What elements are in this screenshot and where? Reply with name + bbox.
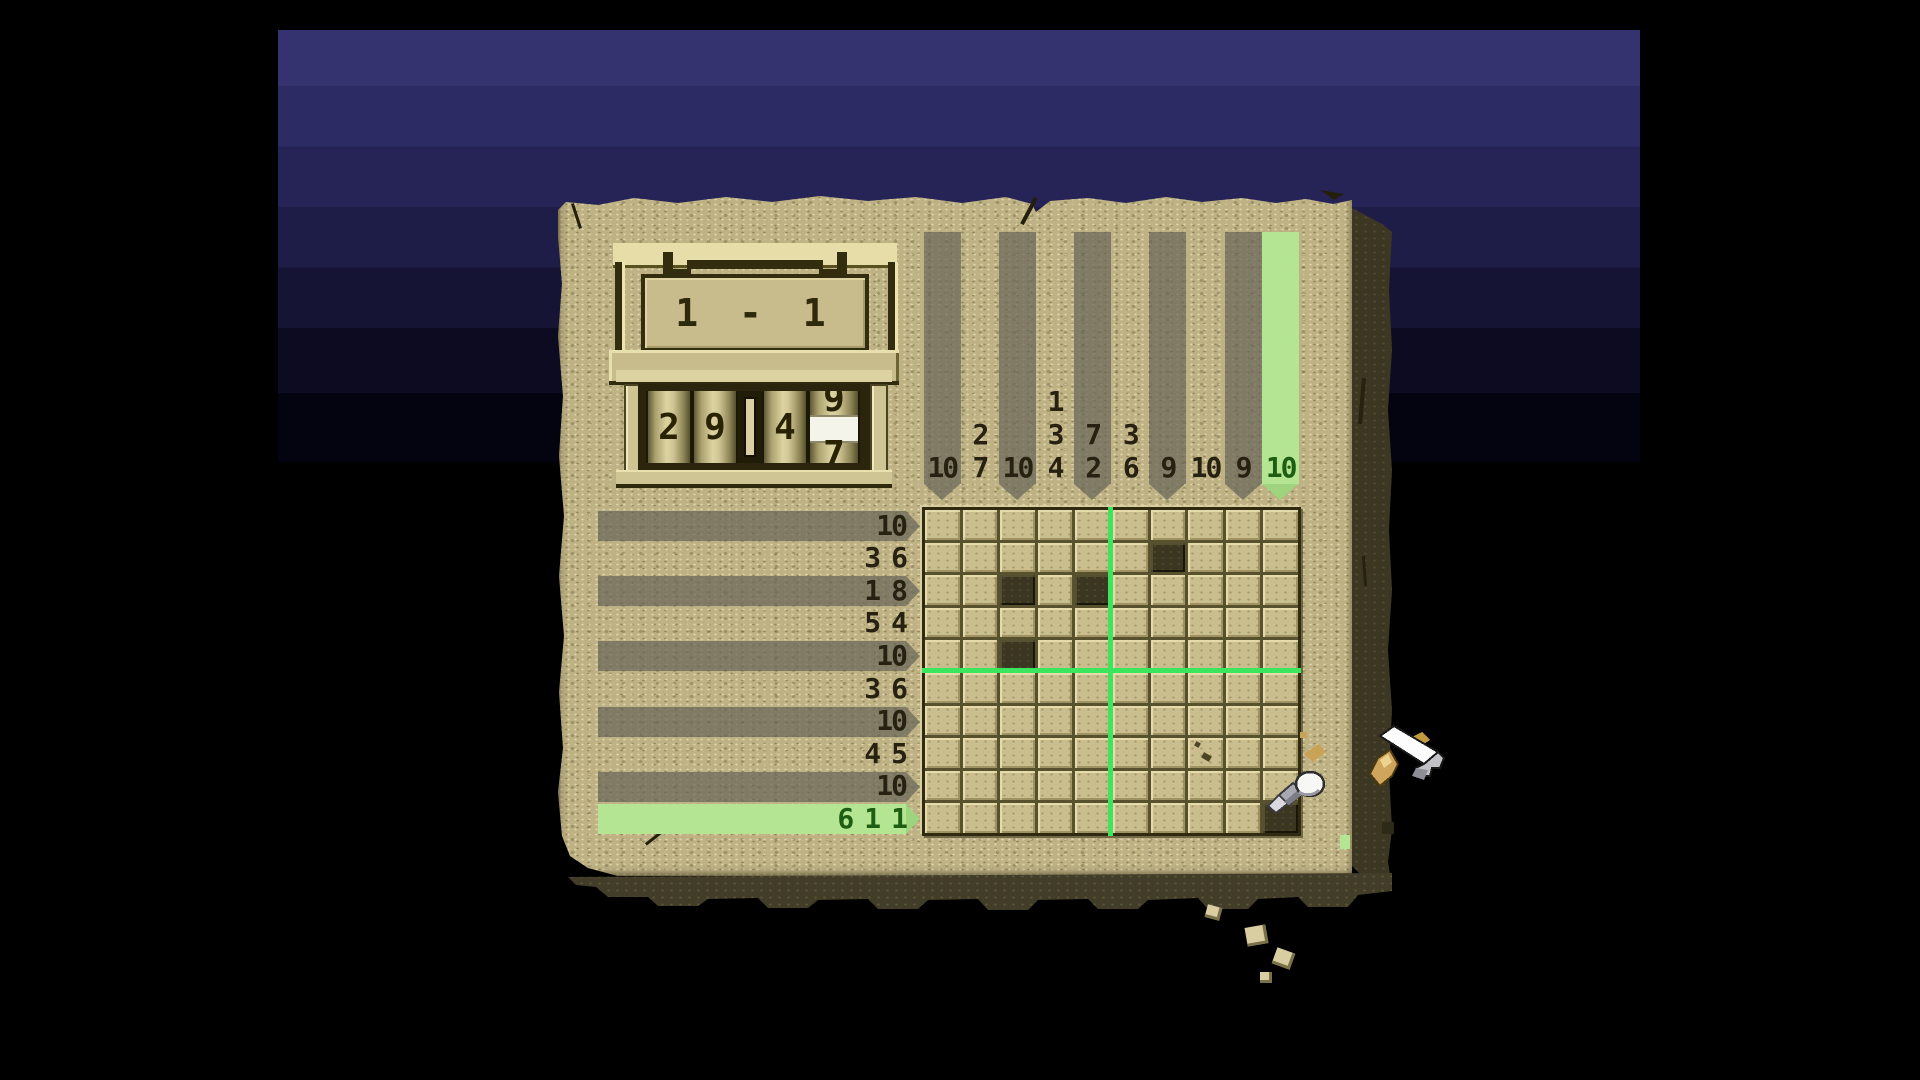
row-hint-number: 1: [864, 802, 879, 835]
grid-cell[interactable]: [963, 575, 998, 605]
hammer-shadow-speck: [1382, 822, 1394, 834]
row-hint-number: 10: [876, 704, 906, 737]
hammer-cursor-icon: [1358, 708, 1458, 818]
grid-cell[interactable]: [1226, 543, 1261, 573]
column-hints: 9: [1149, 451, 1187, 484]
grid-cell-filled[interactable]: [1000, 640, 1035, 670]
column-hint-number: 9: [1149, 451, 1187, 484]
grid-cell[interactable]: [963, 543, 998, 573]
column-stripe-tip: [999, 484, 1035, 500]
column-hint-number: 7: [1074, 418, 1112, 451]
grid-cell[interactable]: [1075, 608, 1110, 638]
grid-cell[interactable]: [1038, 543, 1073, 573]
grid-cell[interactable]: [925, 706, 960, 736]
row-hints: 10: [640, 509, 906, 541]
grid-cell[interactable]: [1263, 640, 1298, 670]
grid-cell[interactable]: [1075, 771, 1110, 801]
grid-cell[interactable]: [925, 575, 960, 605]
grid-cell[interactable]: [1038, 640, 1073, 670]
column-hint-number: 10: [999, 451, 1037, 484]
column-hints: 10: [1262, 451, 1300, 484]
column-stripe-tip: [1225, 484, 1261, 500]
column-stripe: [999, 232, 1036, 484]
column-stripe-tip: [1262, 484, 1298, 500]
timer-digit-minutes-tens: 2: [646, 391, 692, 463]
column-hints: 36: [1111, 418, 1149, 484]
grid-cell-filled[interactable]: [1151, 543, 1186, 573]
grid-cell[interactable]: [1151, 706, 1186, 736]
timer-wheels: 2 9 4 9 7: [638, 384, 870, 470]
column-hint-number: 2: [961, 418, 999, 451]
grid-cell[interactable]: [1113, 673, 1148, 703]
column-hint-number: 10: [1187, 451, 1225, 484]
column-hint-number: 6: [1111, 451, 1149, 484]
grid-cell[interactable]: [1151, 673, 1186, 703]
grid-cell[interactable]: [1113, 608, 1148, 638]
grid-cell[interactable]: [1226, 771, 1261, 801]
row-hints: 36: [640, 542, 906, 574]
green-speck: [1340, 835, 1350, 849]
grid-cell[interactable]: [1113, 771, 1148, 801]
row-stripe-tip: [906, 511, 920, 541]
column-hint-number: 10: [1262, 451, 1300, 484]
column-hints: 10: [999, 451, 1037, 484]
grid-cell[interactable]: [963, 803, 998, 833]
column-hints: 10: [1187, 451, 1225, 484]
grid-cell[interactable]: [1000, 738, 1035, 768]
row-hints: 18: [640, 574, 906, 606]
grid-cell[interactable]: [963, 673, 998, 703]
grid-cell[interactable]: [1226, 673, 1261, 703]
column-hint-number: 3: [1111, 418, 1149, 451]
row-hint-number: 10: [876, 769, 906, 802]
grid-cell[interactable]: [925, 803, 960, 833]
grid-cell[interactable]: [925, 738, 960, 768]
column-hints: 72: [1074, 418, 1112, 484]
grid-cell[interactable]: [925, 608, 960, 638]
timer-counter: 2 9 4 9 7: [616, 370, 892, 494]
timer-digit-minutes-ones: 9: [692, 391, 738, 463]
grid-cell[interactable]: [963, 640, 998, 670]
column-highlight-stripe: [1262, 232, 1299, 484]
column-hint-number: 10: [923, 451, 961, 484]
grid-cell[interactable]: [1000, 510, 1035, 540]
chisel-cursor-icon: [1266, 766, 1328, 816]
grid-cell[interactable]: [1151, 575, 1186, 605]
grid-cell[interactable]: [1038, 706, 1073, 736]
row-hint-number: 6: [891, 672, 906, 705]
grid-cell[interactable]: [1113, 575, 1148, 605]
row-stripe-tip: [906, 804, 920, 834]
row-hint-number: 3: [864, 672, 879, 705]
row-hint-number: 5: [891, 737, 906, 770]
grid-cell[interactable]: [1188, 510, 1223, 540]
grid-cell-filled[interactable]: [1000, 575, 1035, 605]
grid-cell[interactable]: [1263, 575, 1298, 605]
grid-cell[interactable]: [1263, 673, 1298, 703]
grid-cell[interactable]: [1075, 640, 1110, 670]
grid-cell[interactable]: [1151, 738, 1186, 768]
row-stripe-tip: [906, 707, 920, 737]
row-hints: 10: [640, 639, 906, 671]
grid-cell[interactable]: [1113, 543, 1148, 573]
grid-cell[interactable]: [963, 510, 998, 540]
grid-cell[interactable]: [1000, 706, 1035, 736]
grid-cell[interactable]: [925, 771, 960, 801]
grid-cell[interactable]: [1263, 706, 1298, 736]
timer-minutes: 2: [658, 407, 680, 448]
grid-cell[interactable]: [963, 738, 998, 768]
grid-cell[interactable]: [925, 640, 960, 670]
row-stripe-tip: [906, 576, 920, 606]
column-hint-number: 1: [1036, 385, 1074, 418]
grid-cell[interactable]: [1075, 803, 1110, 833]
level-label: 1 - 1: [641, 274, 869, 352]
grid-cell[interactable]: [1226, 510, 1261, 540]
grid-cell[interactable]: [1226, 640, 1261, 670]
row-hints: 10: [640, 770, 906, 802]
row-hint-number: 3: [864, 541, 879, 574]
timer-digit-seconds-tens: 4: [762, 391, 808, 463]
column-hint-number: 2: [1074, 451, 1112, 484]
grid-cell[interactable]: [1038, 771, 1073, 801]
grid-cell[interactable]: [925, 543, 960, 573]
column-stripe-tip: [924, 484, 960, 500]
debris: [1245, 924, 1269, 946]
column-stripe: [1225, 232, 1262, 484]
grid-cell[interactable]: [1075, 738, 1110, 768]
grid-cell[interactable]: [1188, 543, 1223, 573]
row-hints: 45: [640, 737, 906, 769]
column-hint-number: 4: [1036, 451, 1074, 484]
grid-cell[interactable]: [1038, 803, 1073, 833]
grid-cell[interactable]: [1151, 803, 1186, 833]
grid-cell[interactable]: [1151, 771, 1186, 801]
grid-cell[interactable]: [1226, 706, 1261, 736]
row-hint-number: 8: [891, 574, 906, 607]
grid-cell[interactable]: [1151, 640, 1186, 670]
grid-cell[interactable]: [1151, 510, 1186, 540]
row-hint-number: 10: [876, 509, 906, 542]
level-plaque: 1 - 1: [605, 238, 905, 384]
row-hint-number: 1: [891, 802, 906, 835]
grid-cell[interactable]: [1113, 510, 1148, 540]
row-hints: 36: [640, 672, 906, 704]
grid-cell[interactable]: [1188, 771, 1223, 801]
grid-cell[interactable]: [1263, 543, 1298, 573]
debris: [1272, 947, 1296, 969]
grid-cell[interactable]: [1000, 608, 1035, 638]
grid-cell[interactable]: [1113, 640, 1148, 670]
grid-cell[interactable]: [925, 673, 960, 703]
debris: [1205, 904, 1223, 920]
grid-cell[interactable]: [1151, 608, 1186, 638]
grid-cell[interactable]: [1113, 706, 1148, 736]
game-screen: 1 - 1 2 9 4 9 7 102710134723691091010361…: [0, 0, 1920, 1080]
column-hints: 134: [1036, 385, 1074, 484]
grid-cell[interactable]: [1188, 608, 1223, 638]
grid-cell[interactable]: [1188, 706, 1223, 736]
grid-cell[interactable]: [963, 706, 998, 736]
column-hint-number: 9: [1224, 451, 1262, 484]
column-stripe-tip: [1149, 484, 1185, 500]
sand-speck: [1300, 732, 1307, 738]
row-hint-number: 6: [837, 802, 852, 835]
row-stripe-tip: [906, 641, 920, 671]
grid-cell[interactable]: [1038, 738, 1073, 768]
grid-cell[interactable]: [1038, 608, 1073, 638]
grid-cell[interactable]: [963, 771, 998, 801]
row-hint-number: 10: [876, 639, 906, 672]
grid-cell[interactable]: [1188, 640, 1223, 670]
grid-cell[interactable]: [1075, 543, 1110, 573]
grid-cell[interactable]: [1038, 575, 1073, 605]
row-hint-number: 4: [891, 606, 906, 639]
row-hint-number: 6: [891, 541, 906, 574]
grid-cell[interactable]: [1075, 673, 1110, 703]
grid-cell[interactable]: [1000, 673, 1035, 703]
grid-cell[interactable]: [1263, 510, 1298, 540]
grid-cell[interactable]: [1075, 510, 1110, 540]
grid-cell[interactable]: [1226, 738, 1261, 768]
column-stripe-tip: [1074, 484, 1110, 500]
grid-cell[interactable]: [925, 510, 960, 540]
plaque-lintel-bar: [687, 260, 823, 269]
grid-cell[interactable]: [1000, 543, 1035, 573]
block-divider-horizontal: [922, 668, 1301, 673]
column-hint-number: 3: [1036, 418, 1074, 451]
grid-cell[interactable]: [1113, 738, 1148, 768]
grid-cell[interactable]: [1113, 803, 1148, 833]
row-hint-number: 4: [864, 737, 879, 770]
grid-cell[interactable]: [1226, 608, 1261, 638]
row-hint-number: 5: [864, 606, 879, 639]
column-hint-number: 7: [961, 451, 999, 484]
column-stripe: [1149, 232, 1186, 484]
timer-digit-seconds-ones-rolling: 9 7: [808, 391, 860, 463]
grid-cell[interactable]: [963, 608, 998, 638]
grid-cell[interactable]: [1000, 771, 1035, 801]
grid-cell[interactable]: [1226, 803, 1261, 833]
grid-cell[interactable]: [1263, 608, 1298, 638]
row-hints: 10: [640, 705, 906, 737]
grid-cell[interactable]: [1226, 575, 1261, 605]
column-stripe: [924, 232, 961, 484]
grid-cell[interactable]: [1263, 738, 1298, 768]
debris: [1260, 972, 1272, 983]
grid-cell-filled[interactable]: [1075, 575, 1110, 605]
grid-cell[interactable]: [1188, 575, 1223, 605]
column-hints: 10: [923, 451, 961, 484]
grid-cell[interactable]: [1188, 803, 1223, 833]
tablet-bottom-side: [568, 873, 1392, 913]
row-stripe-tip: [906, 772, 920, 802]
grid-cell[interactable]: [1188, 673, 1223, 703]
row-hint-number: 1: [864, 574, 879, 607]
timer-separator: [738, 391, 762, 463]
grid-cell[interactable]: [1000, 803, 1035, 833]
row-hints: 611: [640, 802, 906, 834]
column-hints: 9: [1224, 451, 1262, 484]
row-hints: 54: [640, 607, 906, 639]
grid-cell[interactable]: [1038, 673, 1073, 703]
grid-cell[interactable]: [1075, 706, 1110, 736]
grid-cell[interactable]: [1038, 510, 1073, 540]
column-hints: 27: [961, 418, 999, 484]
